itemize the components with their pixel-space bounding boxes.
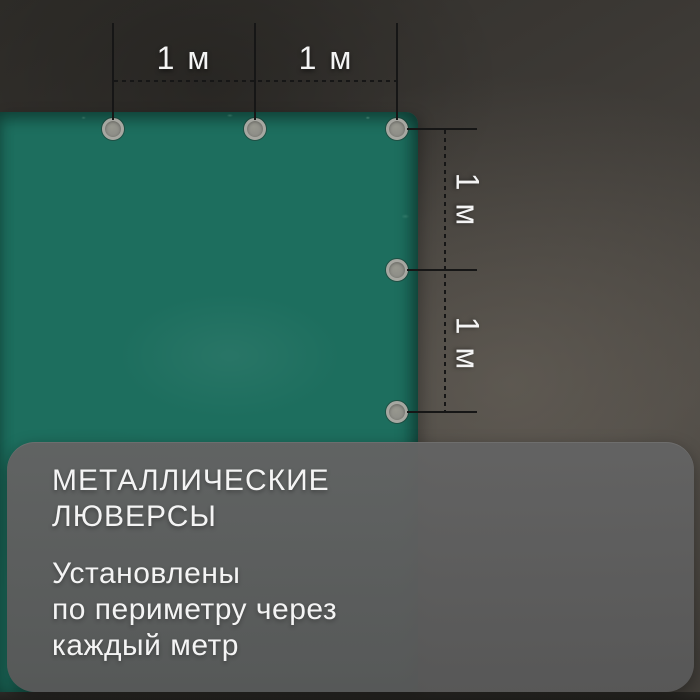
grommet-icon bbox=[386, 259, 408, 281]
info-card-description-line: по периметру через bbox=[52, 592, 664, 628]
info-card-description-line: каждый метр bbox=[52, 628, 664, 664]
info-card-title-line: МЕТАЛЛИЧЕСКИЕ bbox=[52, 463, 664, 499]
info-card-title: МЕТАЛЛИЧЕСКИЕ ЛЮВЕРСЫ bbox=[52, 463, 664, 535]
dimension-extension-line bbox=[407, 269, 477, 271]
dimension-label: 1 м bbox=[449, 173, 486, 228]
grommet-icon bbox=[386, 401, 408, 423]
dimension-label: 1 м bbox=[255, 40, 397, 77]
dimension-label: 1 м bbox=[449, 317, 486, 372]
dimension-label: 1 м bbox=[113, 40, 255, 77]
grommet-icon bbox=[244, 118, 266, 140]
grommet-icon bbox=[386, 118, 408, 140]
dimension-dashed-line-top bbox=[114, 80, 396, 82]
dimension-extension-line bbox=[407, 411, 477, 413]
grommet-icon bbox=[102, 118, 124, 140]
product-image-background: 1 м 1 м 1 м 1 м МЕТАЛЛИЧЕСКИЕ ЛЮВЕРСЫ Ус… bbox=[0, 0, 700, 700]
dimension-dashed-line-right bbox=[444, 130, 446, 412]
info-card-description-line: Установлены bbox=[52, 556, 664, 592]
info-card-description: Установлены по периметру через каждый ме… bbox=[52, 556, 664, 664]
info-card: МЕТАЛЛИЧЕСКИЕ ЛЮВЕРСЫ Установлены по пер… bbox=[7, 442, 694, 692]
dimension-extension-line bbox=[407, 128, 477, 130]
bottom-vignette bbox=[0, 692, 700, 700]
info-card-title-line: ЛЮВЕРСЫ bbox=[52, 499, 664, 535]
